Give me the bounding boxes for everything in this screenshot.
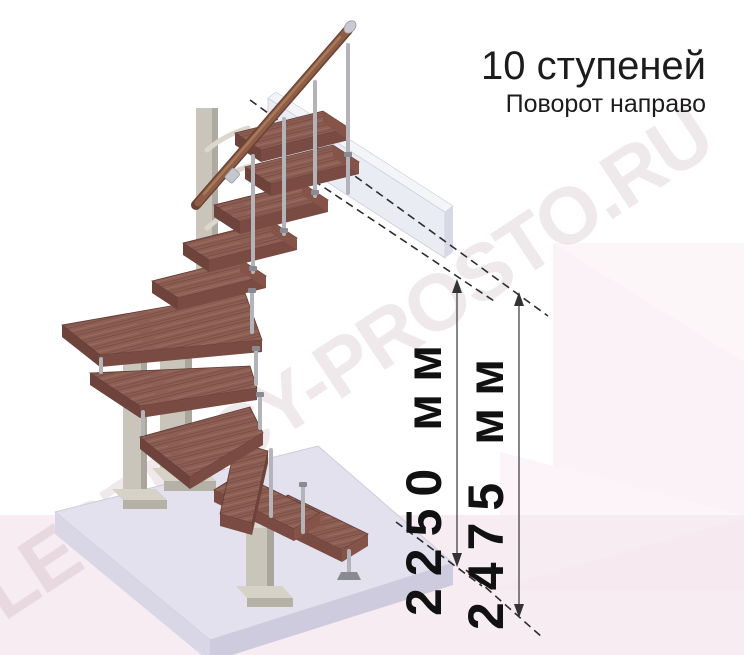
dimension-label-2250: 2250 мм (396, 333, 452, 616)
dimension-label-2475: 2475 мм (458, 347, 514, 630)
staircase-illustration: LESTNICY-PROSTO.RU (0, 0, 744, 655)
staircase-diagram-page: LESTNICY-PROSTO.RU (0, 0, 744, 655)
leg-base-flange (337, 572, 361, 580)
header: 10 ступеней Поворот направо (481, 44, 706, 118)
page-title: 10 ступеней (481, 44, 706, 88)
page-subtitle: Поворот направо (506, 90, 706, 118)
